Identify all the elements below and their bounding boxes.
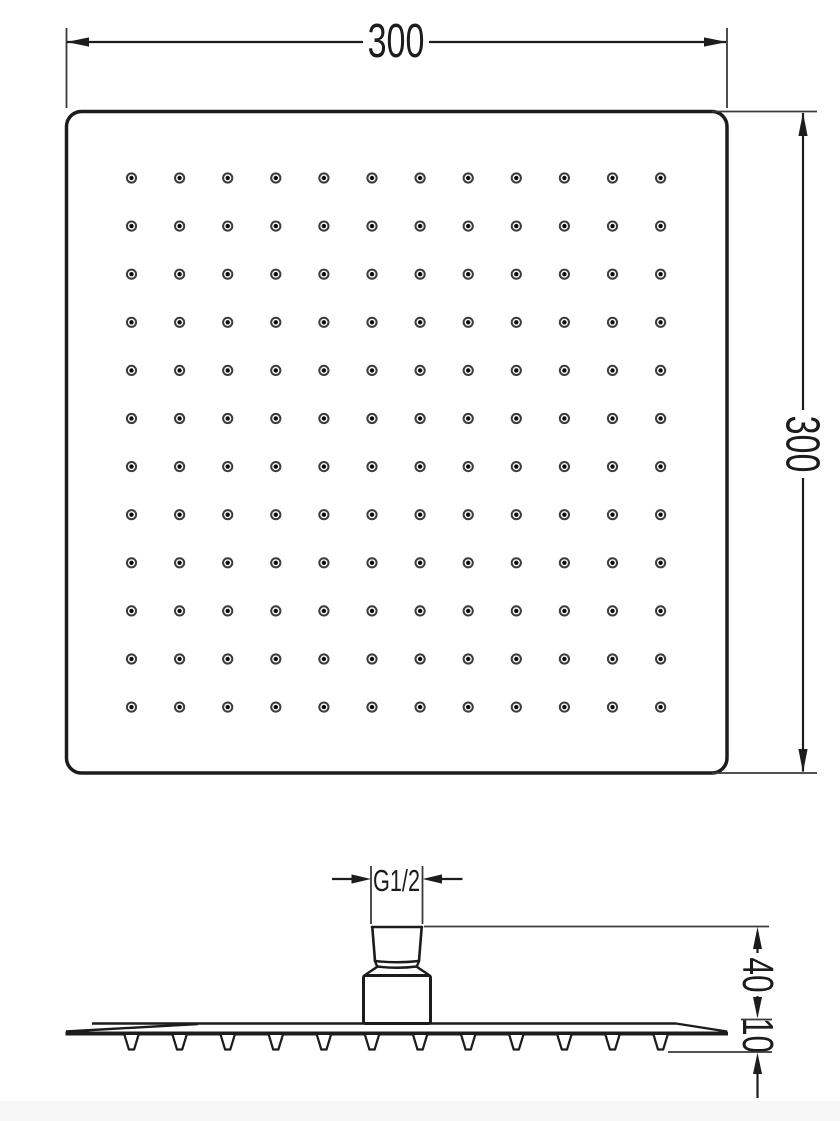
dim-thread: G1/2 bbox=[332, 863, 463, 924]
nozzle-dot bbox=[226, 561, 230, 565]
thread-pipe bbox=[372, 927, 422, 961]
nozzle-dot bbox=[177, 368, 181, 372]
nozzle-dot bbox=[418, 561, 422, 565]
nozzle-stub bbox=[317, 1035, 331, 1050]
nozzle-dot bbox=[274, 272, 278, 276]
nozzle-dot bbox=[418, 513, 422, 517]
nozzle-dot bbox=[370, 609, 374, 613]
arrowhead-right-icon bbox=[352, 874, 372, 883]
nozzle-dot bbox=[370, 224, 374, 228]
nozzle-dot bbox=[514, 609, 518, 613]
nozzle-dot bbox=[418, 224, 422, 228]
nozzle-dot bbox=[322, 368, 326, 372]
nozzle-dot bbox=[466, 176, 470, 180]
nozzle-dot bbox=[658, 561, 662, 565]
nozzle-dot bbox=[274, 561, 278, 565]
nozzle-dot bbox=[466, 368, 470, 372]
nozzle-dot bbox=[514, 272, 518, 276]
nozzle-dot bbox=[466, 609, 470, 613]
nozzle-dot bbox=[177, 513, 181, 517]
connector-base bbox=[364, 976, 431, 1024]
nozzle-dot bbox=[226, 368, 230, 372]
height-label: 300 bbox=[776, 416, 830, 473]
nozzle-dot bbox=[177, 416, 181, 420]
nozzle-dot bbox=[274, 320, 278, 324]
nozzle-dot bbox=[610, 705, 614, 709]
plate-thickness-label: 10 bbox=[733, 1018, 782, 1053]
nozzle-dot bbox=[562, 320, 566, 324]
nozzle-dot bbox=[370, 416, 374, 420]
nozzle-dot bbox=[370, 705, 374, 709]
nozzle-dot bbox=[418, 705, 422, 709]
width-label: 300 bbox=[368, 13, 425, 67]
connector-height-label: 40 bbox=[733, 957, 782, 992]
side-view bbox=[66, 927, 729, 1050]
nozzle-dot bbox=[610, 176, 614, 180]
nozzle-dot bbox=[562, 513, 566, 517]
nozzle-dot bbox=[514, 464, 518, 468]
nozzle-dot bbox=[274, 176, 278, 180]
nozzle-dot bbox=[658, 368, 662, 372]
nozzle-dot bbox=[610, 561, 614, 565]
nozzle-dot bbox=[514, 224, 518, 228]
nozzle-dot bbox=[658, 513, 662, 517]
collar-line-upper bbox=[375, 961, 419, 962]
nozzle-dot bbox=[562, 176, 566, 180]
nozzle-dot bbox=[610, 657, 614, 661]
plate-left-bevel bbox=[66, 1024, 198, 1032]
nozzle-stub bbox=[413, 1035, 427, 1050]
nozzle-dot bbox=[466, 224, 470, 228]
nozzle-dot bbox=[562, 368, 566, 372]
pipe-left-edge bbox=[372, 927, 375, 961]
nozzle-dot bbox=[514, 176, 518, 180]
arrowhead-up-icon bbox=[753, 927, 762, 949]
nozzle-dot bbox=[658, 320, 662, 324]
nozzle-dot bbox=[226, 705, 230, 709]
nozzle-dot bbox=[322, 176, 326, 180]
nozzle-dot bbox=[129, 609, 133, 613]
nozzle-dot bbox=[129, 561, 133, 565]
nozzle-dot bbox=[658, 609, 662, 613]
drawing-sheet: 300 300 bbox=[0, 0, 840, 1121]
nozzle-dot bbox=[562, 657, 566, 661]
nozzle-dot bbox=[370, 320, 374, 324]
nozzle-dot bbox=[274, 705, 278, 709]
nozzle-dot bbox=[610, 513, 614, 517]
nozzle-dot bbox=[466, 513, 470, 517]
arrowhead-down-icon bbox=[753, 997, 762, 1019]
arrowhead-left-icon bbox=[423, 874, 443, 883]
nozzle-dot bbox=[129, 176, 133, 180]
nozzle-stub bbox=[654, 1035, 668, 1050]
nozzle-dot bbox=[370, 272, 374, 276]
nozzle-stub bbox=[365, 1035, 379, 1050]
nozzle-dot bbox=[322, 464, 326, 468]
nozzle-dot bbox=[322, 272, 326, 276]
nozzle-dot bbox=[418, 272, 422, 276]
nozzle-dot bbox=[658, 272, 662, 276]
nozzle-dot bbox=[562, 272, 566, 276]
nozzle-dot bbox=[370, 176, 374, 180]
nozzle-dot bbox=[370, 657, 374, 661]
nozzle-dot bbox=[610, 368, 614, 372]
nozzle-stub bbox=[125, 1035, 139, 1050]
nozzle-dot bbox=[418, 368, 422, 372]
nozzle-dot bbox=[610, 272, 614, 276]
nozzle-dot bbox=[514, 416, 518, 420]
nozzle-dot bbox=[177, 464, 181, 468]
arrowhead-up-icon bbox=[753, 1053, 762, 1075]
nozzle-dot bbox=[177, 657, 181, 661]
nozzle-dot bbox=[129, 513, 133, 517]
nozzle-dot bbox=[322, 416, 326, 420]
thread-label: G1/2 bbox=[373, 863, 420, 898]
nozzle-dot bbox=[129, 705, 133, 709]
top-view bbox=[67, 112, 728, 774]
nozzle-dot bbox=[466, 705, 470, 709]
plate-right-bevel bbox=[676, 1024, 727, 1032]
nozzle-stub bbox=[461, 1035, 475, 1050]
nozzle-dot bbox=[129, 657, 133, 661]
nozzle-dot bbox=[370, 368, 374, 372]
nozzle-dot bbox=[177, 609, 181, 613]
nozzle-dot bbox=[274, 368, 278, 372]
nozzle-dot bbox=[562, 464, 566, 468]
nozzle-dot bbox=[514, 513, 518, 517]
nozzle-dot bbox=[129, 272, 133, 276]
dim-height: 300 bbox=[712, 112, 830, 774]
nozzle-dot bbox=[274, 657, 278, 661]
nozzle-dot bbox=[514, 320, 518, 324]
shower-plate-outline bbox=[67, 112, 728, 774]
nozzle-dot bbox=[610, 320, 614, 324]
nozzle-dot bbox=[562, 416, 566, 420]
nozzle-dot bbox=[177, 272, 181, 276]
nozzle-dot bbox=[226, 513, 230, 517]
nozzle-stub bbox=[173, 1035, 187, 1050]
connector-collar bbox=[365, 961, 430, 976]
nozzle-dot bbox=[226, 416, 230, 420]
nozzle-dot bbox=[129, 320, 133, 324]
nozzle-stub bbox=[269, 1035, 283, 1050]
nozzle-dot bbox=[322, 705, 326, 709]
dim-plate-thickness: 10 bbox=[668, 1018, 782, 1098]
arrowhead-right-icon bbox=[704, 37, 727, 46]
nozzle-dot bbox=[610, 224, 614, 228]
nozzle-dot bbox=[177, 561, 181, 565]
nozzle-dot bbox=[322, 657, 326, 661]
nozzle-dot bbox=[226, 176, 230, 180]
nozzle-dot bbox=[177, 224, 181, 228]
nozzle-dot bbox=[514, 561, 518, 565]
nozzle-dot bbox=[514, 705, 518, 709]
nozzle-dot bbox=[226, 609, 230, 613]
nozzle-stub bbox=[509, 1035, 523, 1050]
nozzle-dot bbox=[274, 224, 278, 228]
dim-connector-height: 40 bbox=[424, 927, 782, 1019]
arrowhead-left-icon bbox=[67, 37, 90, 46]
nozzle-dot bbox=[514, 368, 518, 372]
nozzle-dot bbox=[129, 224, 133, 228]
nozzle-dot bbox=[562, 561, 566, 565]
stub-row bbox=[125, 1035, 668, 1050]
nozzle-dot bbox=[562, 609, 566, 613]
nozzle-dot bbox=[418, 609, 422, 613]
nozzle-dot bbox=[466, 464, 470, 468]
nozzle-dot bbox=[466, 320, 470, 324]
nozzle-dot bbox=[466, 561, 470, 565]
nozzle-dot bbox=[610, 609, 614, 613]
nozzle-dot bbox=[658, 464, 662, 468]
nozzle-dot bbox=[466, 657, 470, 661]
nozzle-dot bbox=[129, 368, 133, 372]
pipe-right-edge bbox=[419, 927, 422, 961]
nozzle-dot bbox=[322, 609, 326, 613]
nozzle-dot bbox=[274, 609, 278, 613]
shower-head-technical-drawing: 300 300 bbox=[0, 0, 840, 1121]
nozzle-dot bbox=[514, 657, 518, 661]
nozzle-dot bbox=[322, 561, 326, 565]
nozzle-dot bbox=[177, 705, 181, 709]
nozzle-dot bbox=[610, 416, 614, 420]
nozzle-dot bbox=[226, 464, 230, 468]
nozzle-dot bbox=[658, 705, 662, 709]
nozzle-dot bbox=[418, 320, 422, 324]
nozzle-dot bbox=[226, 320, 230, 324]
nozzle-dot bbox=[322, 513, 326, 517]
nozzle-dot bbox=[177, 320, 181, 324]
nozzle-dot bbox=[322, 224, 326, 228]
nozzle-dot bbox=[562, 705, 566, 709]
nozzle-dot bbox=[658, 657, 662, 661]
nozzle-stub bbox=[606, 1035, 620, 1050]
nozzle-dot bbox=[177, 176, 181, 180]
arrowhead-down-icon bbox=[798, 749, 807, 773]
nozzle-dot bbox=[226, 272, 230, 276]
nozzle-dot bbox=[658, 224, 662, 228]
nozzle-stub bbox=[557, 1035, 571, 1050]
nozzle-dot bbox=[610, 464, 614, 468]
nozzle-dot bbox=[370, 464, 374, 468]
nozzle-dot bbox=[658, 416, 662, 420]
nozzle-dot bbox=[129, 464, 133, 468]
nozzle-dot bbox=[562, 224, 566, 228]
dim-width: 300 bbox=[67, 13, 728, 108]
nozzle-dot bbox=[418, 176, 422, 180]
nozzle-dot bbox=[466, 416, 470, 420]
nozzle-dot bbox=[418, 416, 422, 420]
nozzle-dot bbox=[226, 224, 230, 228]
nozzle-dot bbox=[274, 513, 278, 517]
nozzle-dot bbox=[658, 176, 662, 180]
nozzle-stub bbox=[221, 1035, 235, 1050]
nozzle-dot bbox=[418, 657, 422, 661]
nozzle-dot bbox=[274, 464, 278, 468]
nozzle-dot bbox=[418, 464, 422, 468]
nozzle-dot bbox=[129, 416, 133, 420]
nozzle-dot bbox=[370, 513, 374, 517]
page-edge-band bbox=[0, 1101, 840, 1121]
collar-line-lower bbox=[378, 967, 417, 968]
nozzle-dot bbox=[226, 657, 230, 661]
nozzle-dot bbox=[466, 272, 470, 276]
nozzle-dot bbox=[274, 416, 278, 420]
arrowhead-up-icon bbox=[798, 113, 807, 137]
nozzle-dot bbox=[322, 320, 326, 324]
nozzle-dot bbox=[370, 561, 374, 565]
